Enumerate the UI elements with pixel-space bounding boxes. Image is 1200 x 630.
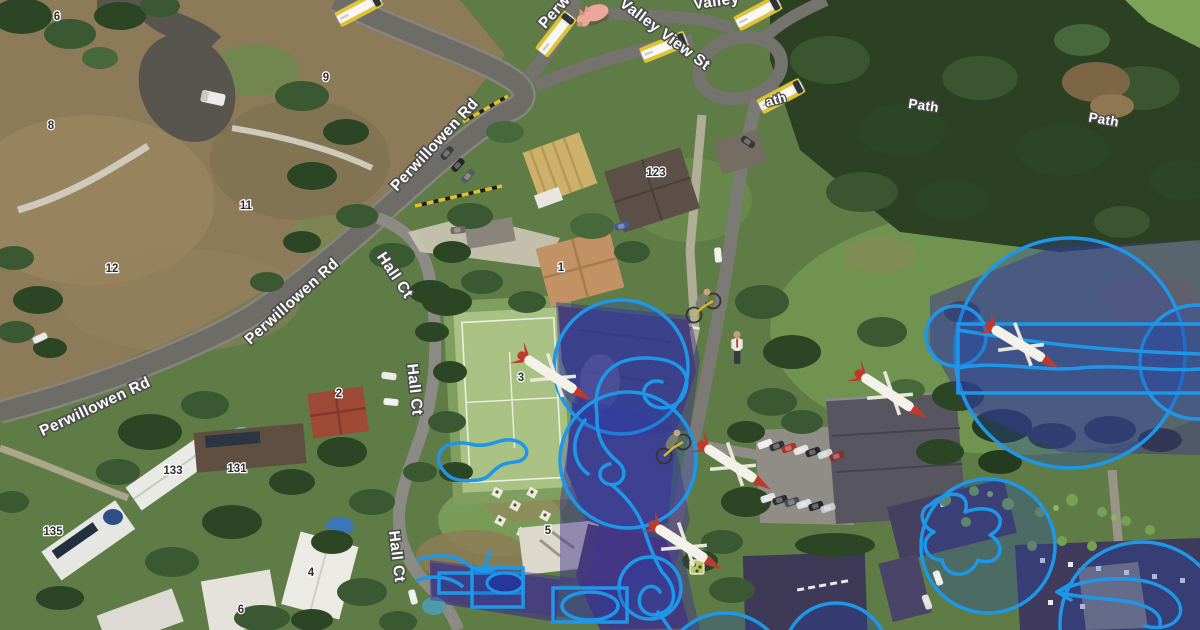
lot-number: 2 (336, 388, 342, 400)
lot-number: 123 (646, 167, 665, 179)
lot-number: 5 (545, 525, 552, 537)
lot-number: 11 (240, 200, 253, 212)
lot-number: 135 (43, 526, 63, 538)
lot-number: 131 (227, 463, 247, 475)
lot-number: 1 (558, 262, 565, 274)
map-canvas: Perwillowen Rd Perwillowen Rd Perwillowe… (0, 0, 1200, 630)
lot-number: 133 (163, 465, 182, 477)
lot-number: 6 (238, 604, 244, 616)
lot-number: 12 (106, 263, 119, 275)
lot-number: 6 (54, 11, 60, 23)
lot-number: 9 (323, 72, 329, 84)
satellite-map[interactable]: Perwillowen Rd Perwillowen Rd Perwillowe… (0, 0, 1200, 630)
strike-radius-circle (560, 392, 696, 528)
lot-number: 4 (308, 567, 315, 579)
lot-number: 3 (518, 372, 524, 384)
lot-number: 8 (48, 120, 55, 132)
